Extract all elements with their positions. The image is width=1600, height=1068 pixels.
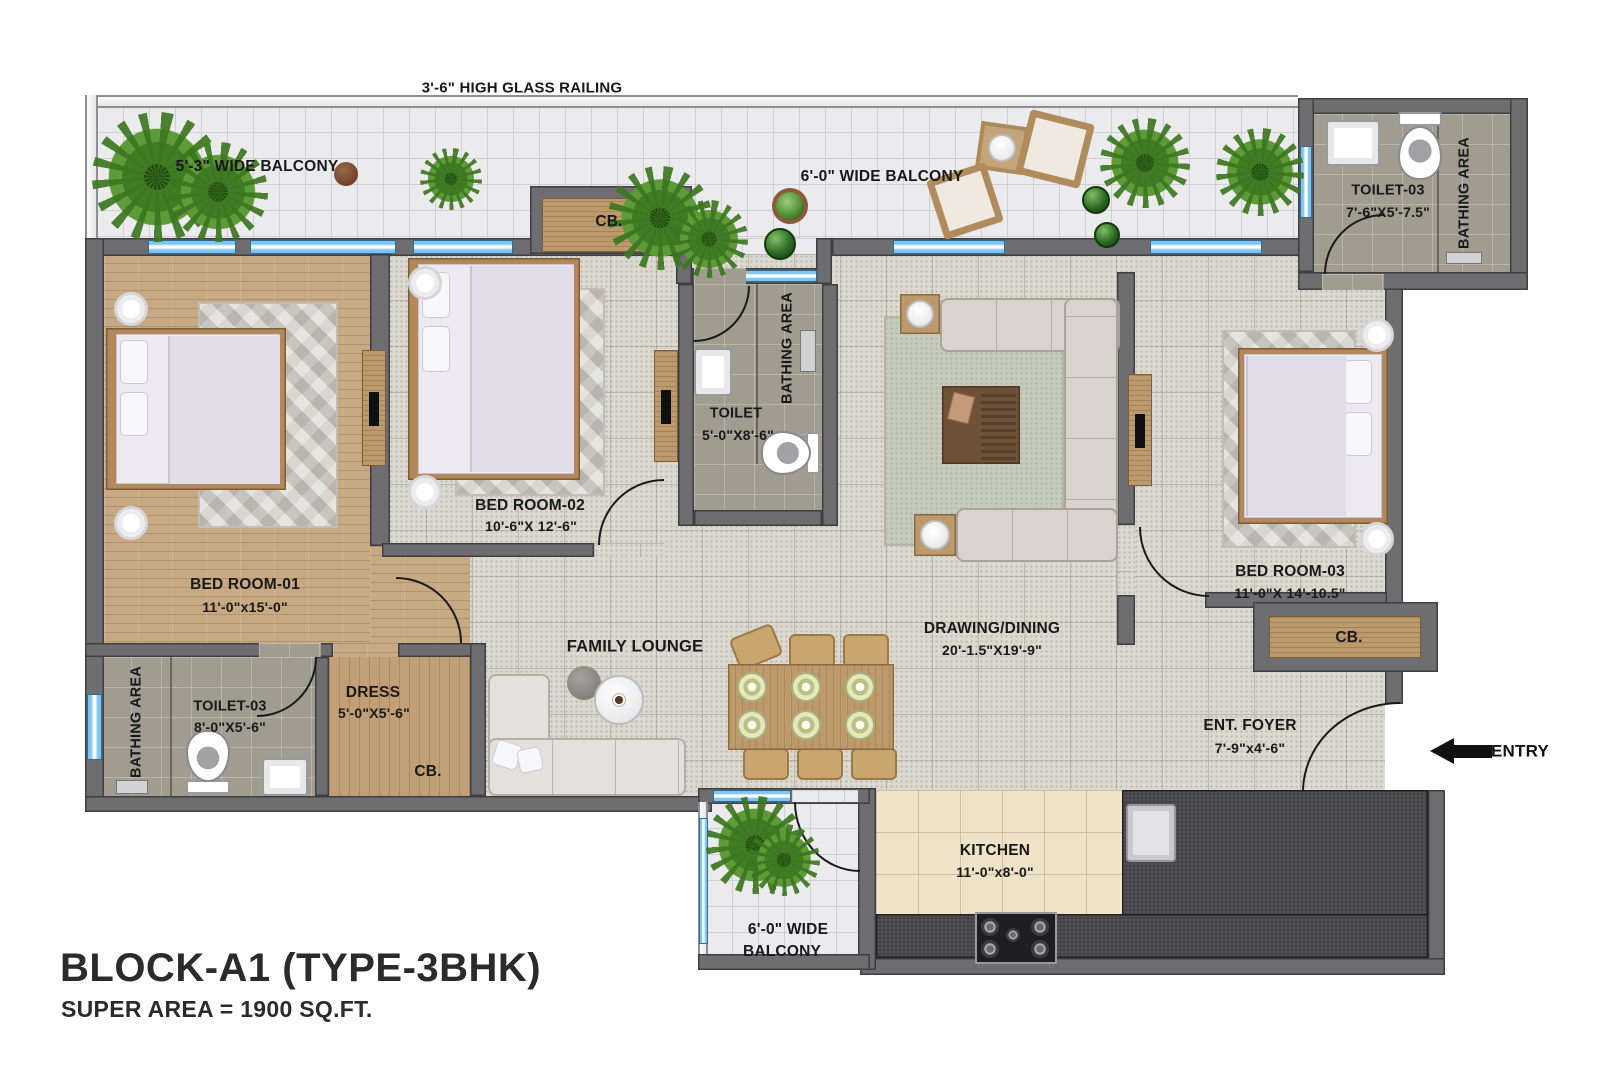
wall-kitchen-bottom xyxy=(860,958,1445,975)
dress-dims: 5'-0"X5'-6" xyxy=(338,705,410,721)
door-gap-toilet-bl xyxy=(259,643,321,657)
family-lounge-label: FAMILY LOUNGE xyxy=(567,638,703,657)
toilet-center-name: TOILET xyxy=(710,406,763,423)
drawing-corner-table-plate xyxy=(906,300,934,328)
bedroom2-name: BED ROOM-02 xyxy=(475,497,585,515)
toilet-center-sink-icon xyxy=(694,348,732,396)
toilet-tr-wc-icon xyxy=(1398,126,1442,180)
kitchen-counter-bottom xyxy=(876,914,1428,958)
dining-plate3 xyxy=(845,672,875,702)
bedroom1-name: BED ROOM-01 xyxy=(190,576,300,594)
plan-subtitle: SUPER AREA = 1900 SQ.FT. xyxy=(61,998,373,1021)
partition-bathing-bl xyxy=(170,657,172,796)
bedroom1-blanket xyxy=(168,336,280,484)
wall-toilet-center-right xyxy=(822,284,838,526)
dining-plate6 xyxy=(845,710,875,740)
bedroom1-pillow2 xyxy=(120,392,148,436)
toilet-tr-sink-icon xyxy=(1326,120,1380,166)
window-bathing-notch xyxy=(737,270,817,282)
door-gap-bed3 xyxy=(1117,525,1135,595)
window-bed2 xyxy=(413,240,513,254)
bathing-bl-label: BATHING AREA xyxy=(129,666,146,778)
dress-floor xyxy=(329,657,470,796)
palm-plant-icon6 xyxy=(1100,118,1190,208)
dining-chair3 xyxy=(843,634,889,668)
ent-foyer-dims: 7'-9"x4'-6" xyxy=(1215,740,1285,756)
entry-arrow-bar xyxy=(1452,745,1492,758)
drawing-corner-table2-plate xyxy=(920,520,950,550)
bedroom3-pillow2 xyxy=(1344,412,1372,456)
kitchen-dims: 11'-0"x8'-0" xyxy=(956,864,1034,880)
dress-doorway-floor xyxy=(333,643,398,657)
toilet-bl-wc-tank xyxy=(186,780,230,794)
drawing-dining-name: DRAWING/DINING xyxy=(924,620,1060,638)
bedroom3-nightstand xyxy=(1360,318,1394,352)
toilet-center-bathing-label: BATHING AREA xyxy=(780,292,797,404)
bedroom1-nightstand xyxy=(114,292,148,326)
bedroom3-blanket xyxy=(1246,356,1346,516)
dining-plate5 xyxy=(791,710,821,740)
drawing-dining-dims: 20'-1.5"X19'-9" xyxy=(942,642,1042,658)
bedroom1-tv xyxy=(369,392,379,426)
balcony-table-plate xyxy=(988,134,1016,162)
toilet-tr-bathing-label: BATHING AREA xyxy=(1457,137,1474,249)
kitchen-sink-icon xyxy=(1126,804,1176,862)
bedroom1-pillow xyxy=(120,340,148,384)
coffee-table-slats xyxy=(981,390,1016,460)
glass-railing-top xyxy=(85,95,1298,108)
bedroom3-nightstand2 xyxy=(1360,522,1394,556)
bedroom2-nightstand xyxy=(408,266,442,300)
palm-plant-icon9 xyxy=(748,824,820,896)
door-gap-toilet-tr xyxy=(1322,274,1384,290)
toilet-bl-shower-icon xyxy=(116,780,148,794)
dress-name: DRESS xyxy=(346,684,400,702)
window-drawing xyxy=(893,240,1005,254)
toilet-bl-name: TOILET-03 xyxy=(193,699,266,716)
dining-chair2 xyxy=(789,634,835,668)
dining-chair6 xyxy=(851,748,897,780)
wall-toilet-dress xyxy=(315,657,329,796)
toilet-tr-shower-icon xyxy=(1446,252,1482,264)
wall-bottom-left-outer xyxy=(85,796,712,812)
toilet-bl-dims: 8'-0"X5'-6" xyxy=(194,719,266,735)
toilet-tr-wall-right xyxy=(1510,98,1528,290)
palm-plant-icon7 xyxy=(1216,128,1304,216)
coffee-cup-icon xyxy=(612,693,626,707)
palm-plant-icon3 xyxy=(420,148,482,210)
dining-plate xyxy=(737,672,767,702)
entry-arrow-icon xyxy=(1430,738,1454,764)
stove-burner xyxy=(981,918,999,936)
cb-top-label: CB. xyxy=(595,213,622,231)
pot-plant-icon2 xyxy=(1082,186,1110,214)
pot-plant-icon xyxy=(764,228,796,260)
dining-chair5 xyxy=(797,748,843,780)
wall-kitchen-left xyxy=(858,788,876,970)
wall-kitchen-right xyxy=(1428,790,1445,975)
window-bed3 xyxy=(1150,240,1262,254)
ent-foyer-name: ENT. FOYER xyxy=(1203,717,1296,735)
dining-chair4 xyxy=(743,748,789,780)
railing-label: 3'-6" HIGH GLASS RAILING xyxy=(422,79,623,96)
wall-dress-right xyxy=(470,643,486,796)
floor-plan: 3'-6" HIGH GLASS RAILING 5'-3" WIDE BALC… xyxy=(0,0,1600,1068)
palm-plant-icon5 xyxy=(670,200,748,278)
toilet-tr-wc-tank xyxy=(1398,112,1442,126)
stove-burner3 xyxy=(981,940,999,958)
dining-plate2 xyxy=(791,672,821,702)
bedroom1-dims: 11'-0"x15'-0" xyxy=(202,599,288,615)
kitchen-name: KITCHEN xyxy=(960,842,1030,860)
stove-burner4 xyxy=(1031,940,1049,958)
bedroom2-nightstand2 xyxy=(408,475,442,509)
dining-plate4 xyxy=(737,710,767,740)
succulent-plant-icon xyxy=(772,188,808,224)
window-bed1-b xyxy=(250,240,396,254)
bedroom3-dims: 11'-0"X 14'-10.5" xyxy=(1234,585,1345,601)
wall-notch-right-stub xyxy=(816,238,832,284)
balcony-bottom-label-line1: 6'-0" WIDE xyxy=(748,921,828,939)
bedroom2-dims: 10'-6"X 12'-6" xyxy=(485,518,577,534)
door-gap-balcony xyxy=(792,790,858,802)
lounge-pillow2 xyxy=(516,746,544,774)
stove-burner-center xyxy=(1006,928,1020,942)
bedroom3-pillow xyxy=(1344,360,1372,404)
toilet-center-dims: 5'-0"X8'-6" xyxy=(702,427,774,443)
drawing-sofa-bottom xyxy=(956,508,1118,562)
wall-toilet-center-left xyxy=(678,284,694,526)
balcony-top-right-label: 6'-0" WIDE BALCONY xyxy=(801,168,964,186)
wall-bed2-bottom xyxy=(382,543,594,557)
balcony-top-left-label: 5'-3" WIDE BALCONY xyxy=(176,158,339,176)
entry-label: ENTRY xyxy=(1491,743,1549,760)
toilet-bl-sink-icon xyxy=(262,758,308,796)
palm-plant-icon2 xyxy=(168,142,268,242)
stove-burner2 xyxy=(1031,918,1049,936)
toilet-tr-name: TOILET-03 xyxy=(1351,183,1424,200)
toilet-center-shower-icon xyxy=(800,330,816,372)
bedroom1-nightstand2 xyxy=(114,506,148,540)
wall-toilet-center-bottom xyxy=(694,510,822,526)
bedroom2-tv xyxy=(661,390,671,424)
cb-dress-label: CB. xyxy=(414,763,441,781)
cb-bed3-label: CB. xyxy=(1335,629,1362,647)
plan-title: BLOCK-A1 (TYPE-3BHK) xyxy=(60,948,541,988)
toilet-tr-dims: 7'-6"X5'-7.5" xyxy=(1346,204,1430,220)
bedroom3-tv xyxy=(1135,414,1145,448)
bedroom2-blanket xyxy=(470,266,574,472)
door-gap-bed2 xyxy=(594,543,664,557)
pot-plant-icon3 xyxy=(1094,222,1120,248)
bedroom3-name: BED ROOM-03 xyxy=(1235,563,1345,581)
wall-bed3-left-stub xyxy=(1117,595,1135,645)
window-bathing-bl xyxy=(87,694,102,760)
bedroom2-pillow2 xyxy=(422,326,450,372)
window-bed1-a xyxy=(148,240,236,254)
balcony-bottom-label-line2: BALCONY xyxy=(743,943,821,961)
